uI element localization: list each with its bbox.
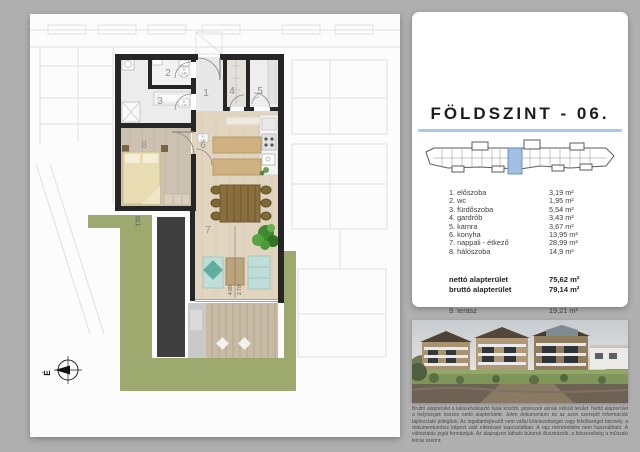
svg-text:É: É	[43, 370, 52, 376]
floor-plan: 90 2,10 90 2,10 90 2,10 4,90 2,70 1,50 1	[30, 14, 400, 437]
svg-text:8: 8	[141, 140, 147, 151]
list-item: 6. konyha13,95 m²	[412, 231, 628, 239]
north-compass-icon: É	[43, 356, 82, 384]
svg-text:6: 6	[200, 140, 206, 151]
brutto-total: bruttó alapterület79,14 m²	[412, 285, 628, 295]
svg-text:4: 4	[229, 86, 235, 97]
svg-text:3: 3	[157, 96, 163, 107]
svg-text:1,50: 1,50	[136, 216, 142, 226]
terrace	[188, 303, 278, 358]
terrace-row: 9. terasz19,21 m²	[412, 307, 628, 315]
highlighted-unit	[508, 148, 522, 174]
floorplan-sheet: 90 2,10 90 2,10 90 2,10 4,90 2,70 1,50 1	[30, 14, 400, 437]
building-key-plan	[420, 136, 620, 184]
title-accent-line	[418, 129, 622, 132]
room-area-list: 1. előszoba3,19 m² 2. wc1,95 m² 3. fürdő…	[412, 189, 628, 256]
svg-text:2: 2	[165, 68, 171, 79]
svg-text:7: 7	[205, 225, 211, 236]
list-item: 5. kamra3,67 m²	[412, 223, 628, 231]
svg-text:5: 5	[257, 86, 263, 97]
page-title: FÖLDSZINT - 06.	[412, 104, 628, 124]
svg-text:2,10: 2,10	[181, 103, 187, 107]
totals: nettó alapterület75,62 m² bruttó alapter…	[412, 275, 628, 294]
list-item: 8. hálószoba14,9 m²	[412, 248, 628, 256]
list-item: 2. wc1,95 m²	[412, 197, 628, 205]
disclaimer-text: Bruttó alapterület a lakáselválasztó fal…	[412, 406, 628, 444]
list-item: 1. előszoba3,19 m²	[412, 189, 628, 197]
list-item: 4. gardrób3,43 m²	[412, 214, 628, 222]
building-render-image	[412, 320, 628, 403]
netto-total: nettó alapterület75,62 m²	[412, 275, 628, 285]
list-item: 3. fürdőszoba5,54 m²	[412, 206, 628, 214]
svg-text:4,90: 4,90	[228, 285, 234, 295]
svg-text:2,70: 2,70	[237, 285, 243, 295]
svg-text:1: 1	[203, 88, 209, 99]
terrace-glass-door	[195, 299, 278, 302]
datasheet-page: 90 2,10 90 2,10 90 2,10 4,90 2,70 1,50 1	[0, 0, 640, 452]
svg-text:2,10: 2,10	[181, 71, 187, 75]
info-panel: FÖLDSZINT - 06.	[412, 12, 628, 307]
list-item: 7. nappali - étkező28,99 m²	[412, 239, 628, 247]
